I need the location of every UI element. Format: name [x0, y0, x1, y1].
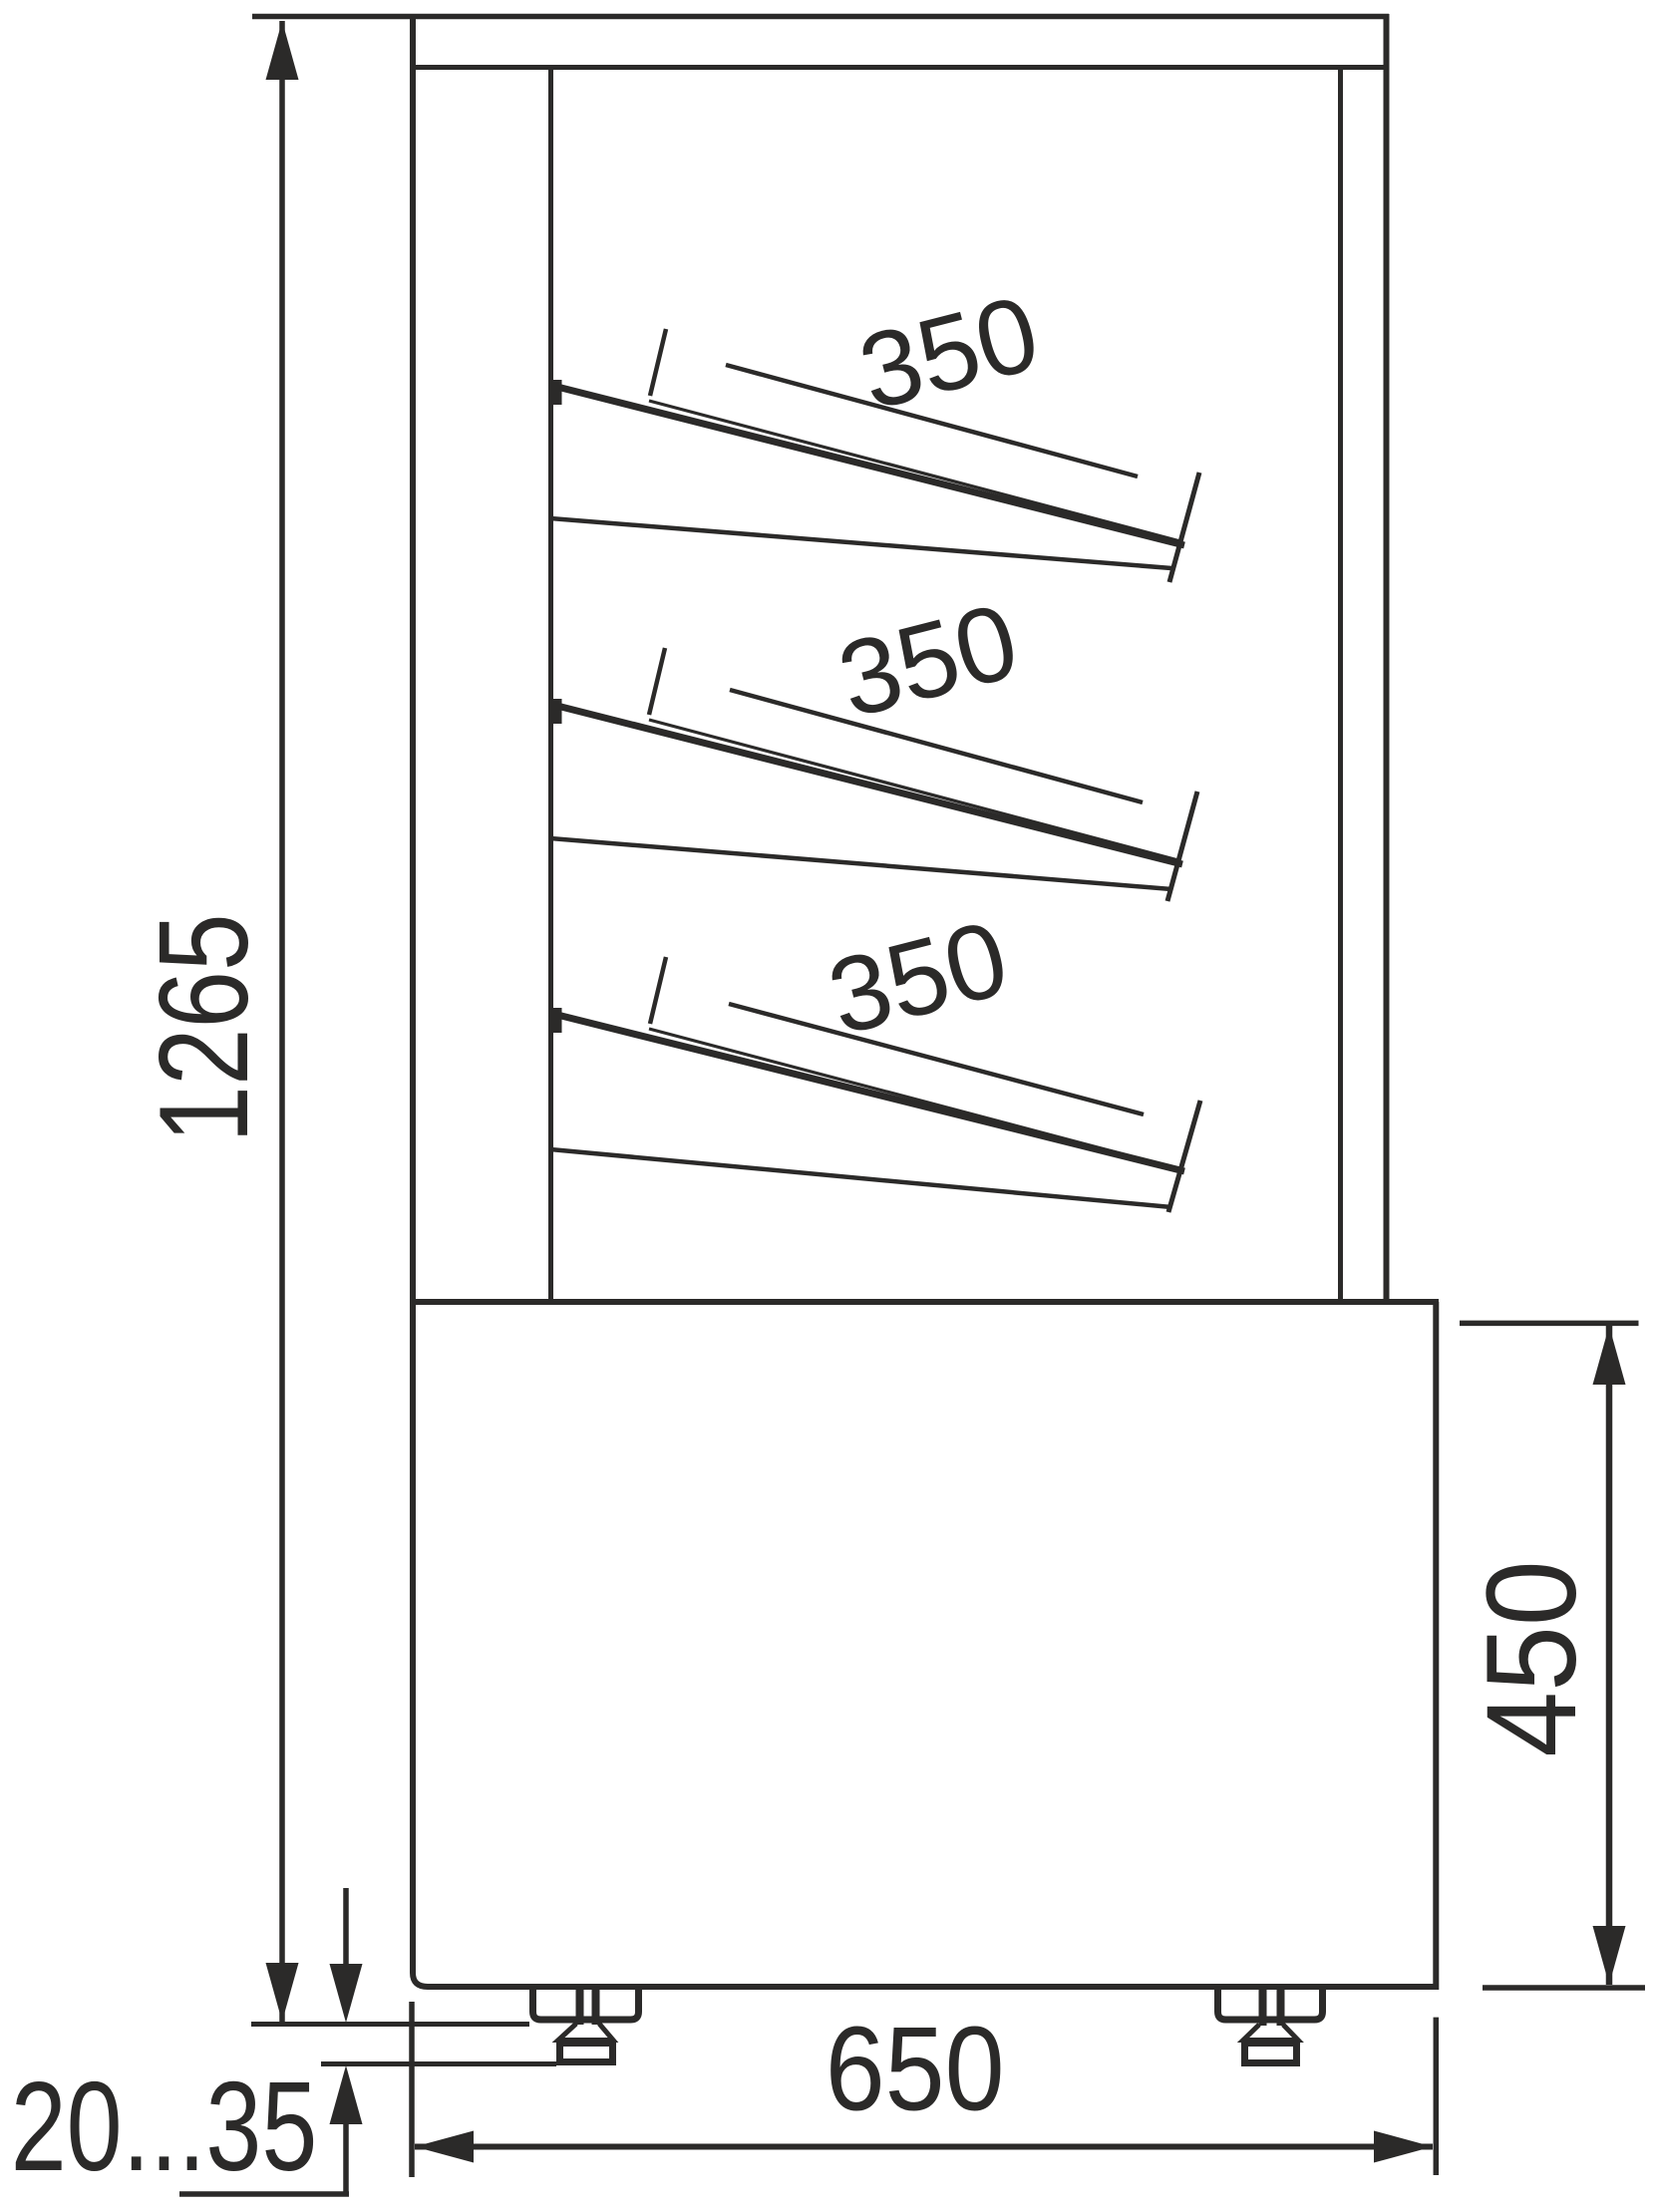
svg-text:20...35: 20...35: [11, 2056, 318, 2198]
svg-text:350: 350: [817, 897, 1019, 1058]
svg-text:350: 350: [827, 580, 1029, 741]
svg-text:650: 650: [826, 2003, 1005, 2136]
svg-text:350: 350: [847, 272, 1050, 433]
svg-text:450: 450: [1461, 1560, 1603, 1757]
svg-text:1265: 1265: [133, 913, 275, 1142]
